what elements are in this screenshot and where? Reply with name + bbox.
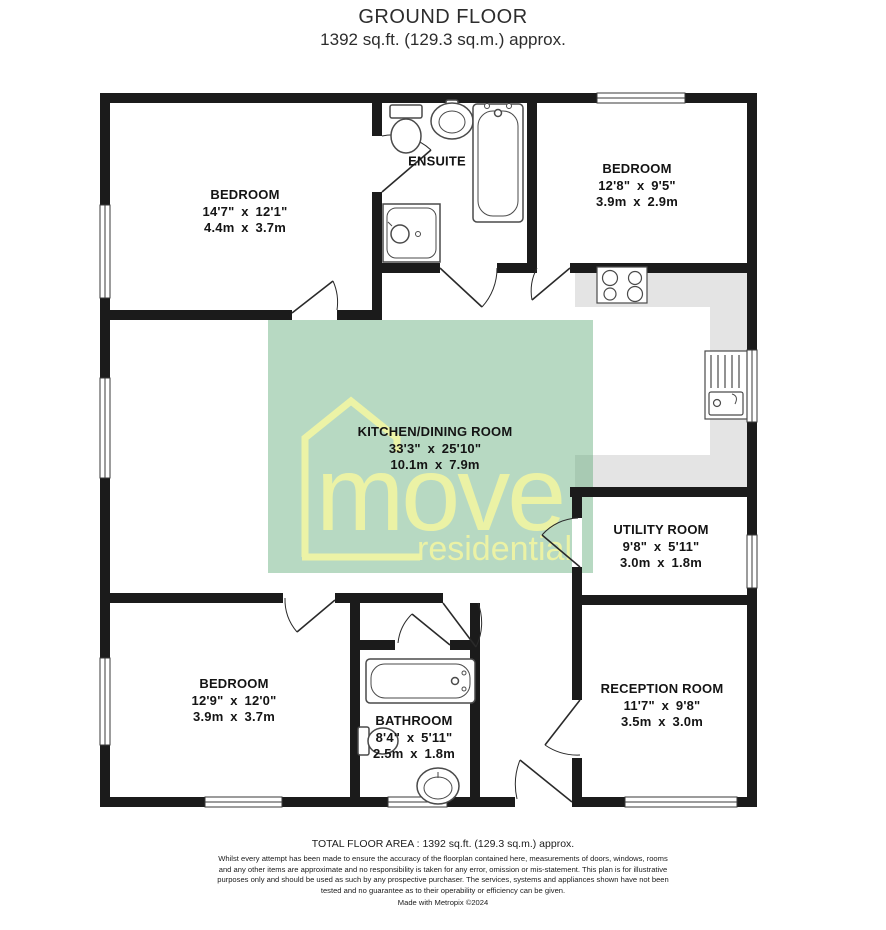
room-name: BEDROOM bbox=[203, 187, 288, 204]
room-dims-imperial: 14'7" x 12'1" bbox=[203, 204, 288, 221]
wall-utility-top bbox=[570, 487, 757, 497]
room-dims-metric: 3.5m x 3.0m bbox=[601, 714, 724, 731]
room-label-reception: RECEPTION ROOM 11'7" x 9'8" 3.5m x 3.0m bbox=[601, 681, 724, 731]
wall-bedroomtl-ensuite bbox=[372, 103, 382, 316]
room-label-bathroom: BATHROOM 8'4" x 5'11" 2.5m x 1.8m bbox=[373, 713, 455, 763]
wall-ensuite-bedroomtr bbox=[527, 93, 537, 273]
room-name: BEDROOM bbox=[596, 161, 678, 178]
ensuite-shower bbox=[383, 204, 440, 262]
ensuite-toilet bbox=[390, 105, 422, 153]
wall-kitchen-bedroombl bbox=[110, 593, 283, 603]
room-dims-metric: 3.9m x 2.9m bbox=[596, 194, 678, 211]
ensuite-kitchen-door-opening bbox=[440, 263, 497, 273]
room-label-kitchen: KITCHEN/DINING ROOM 33'3" x 25'10" 10.1m… bbox=[358, 424, 513, 474]
kitchen-hall-door-opening bbox=[443, 593, 478, 603]
room-dims-metric: 3.0m x 1.8m bbox=[613, 555, 708, 572]
ensuite-door-opening bbox=[372, 136, 382, 192]
wall-bedroomtl-kitchen-b bbox=[337, 310, 382, 320]
room-dims-imperial: 12'9" x 12'0" bbox=[192, 693, 277, 710]
window-reception-bottom bbox=[625, 797, 737, 807]
room-label-utility: UTILITY ROOM 9'8" x 5'11" 3.0m x 1.8m bbox=[613, 522, 708, 572]
kitchen-hob bbox=[597, 267, 647, 303]
bedroomtl-door-opening bbox=[292, 310, 337, 320]
plan-footer: TOTAL FLOOR AREA : 1392 sq.ft. (129.3 sq… bbox=[0, 838, 886, 907]
total-floor-area: TOTAL FLOOR AREA : 1392 sq.ft. (129.3 sq… bbox=[0, 838, 886, 850]
room-dims-imperial: 12'8" x 9'5" bbox=[596, 178, 678, 195]
kitchen-sink bbox=[705, 351, 747, 419]
room-dims-metric: 10.1m x 7.9m bbox=[358, 457, 513, 474]
room-dims-imperial: 33'3" x 25'10" bbox=[358, 441, 513, 458]
wall-bedroombl-bathroom bbox=[350, 603, 360, 807]
window-bedroombl-bottom bbox=[205, 797, 282, 807]
room-name: RECEPTION ROOM bbox=[601, 681, 724, 698]
window-utility-right bbox=[747, 535, 757, 588]
watermark-tagline: residential bbox=[417, 530, 572, 568]
window-bedroombl-left bbox=[100, 658, 110, 745]
room-label-bedroom-bl: BEDROOM 12'9" x 12'0" 3.9m x 3.7m bbox=[192, 676, 277, 726]
bedroomtl-door bbox=[292, 281, 338, 313]
bathroom-basin bbox=[417, 768, 459, 804]
room-name: BATHROOM bbox=[373, 713, 455, 730]
bathroom-bath bbox=[366, 659, 475, 703]
room-dims-imperial: 9'8" x 5'11" bbox=[613, 539, 708, 556]
room-dims-imperial: 8'4" x 5'11" bbox=[373, 730, 455, 747]
room-label-bedroom-tr: BEDROOM 12'8" x 9'5" 3.9m x 2.9m bbox=[596, 161, 678, 211]
bedroombl-door bbox=[285, 598, 335, 632]
bedroombl-door-opening bbox=[283, 593, 335, 603]
room-label-ensuite: ENSUITE bbox=[408, 154, 466, 171]
wall-ensuite-kitchen-b bbox=[497, 263, 537, 273]
wall-bathroom-hall bbox=[470, 603, 480, 807]
front-door bbox=[515, 760, 572, 802]
window-kitchen-right bbox=[747, 350, 757, 422]
utility-door-opening bbox=[572, 518, 582, 567]
wall-utility-reception bbox=[572, 595, 757, 605]
wall-bedroomtl-kitchen-a bbox=[110, 310, 292, 320]
room-name: KITCHEN/DINING ROOM bbox=[358, 424, 513, 441]
metropix-credit: Made with Metropix ©2024 bbox=[0, 898, 886, 907]
window-bedroomtr-top bbox=[597, 93, 685, 103]
floorplan-page: GROUND FLOOR 1392 sq.ft. (129.3 sq.m.) a… bbox=[0, 0, 886, 930]
room-dims-metric: 3.9m x 3.7m bbox=[192, 709, 277, 726]
room-label-bedroom-tl: BEDROOM 14'7" x 12'1" 4.4m x 3.7m bbox=[203, 187, 288, 237]
room-name: ENSUITE bbox=[408, 154, 466, 171]
wall-ensuite-kitchen-a bbox=[372, 263, 440, 273]
room-dims-metric: 4.4m x 3.7m bbox=[203, 220, 288, 237]
outer-wall-right bbox=[747, 93, 757, 807]
disclaimer-text: Whilst every attempt has been made to en… bbox=[217, 854, 669, 897]
room-dims-metric: 2.5m x 1.8m bbox=[373, 746, 455, 763]
bathroom-door-opening bbox=[395, 640, 450, 650]
ensuite-basin bbox=[431, 100, 473, 139]
room-dims-imperial: 11'7" x 9'8" bbox=[601, 698, 724, 715]
ensuite-kitchen-door bbox=[440, 268, 497, 307]
ensuite-bath bbox=[473, 104, 523, 223]
front-door-opening bbox=[515, 797, 572, 807]
window-kitchen-left bbox=[100, 378, 110, 478]
window-bedroomtl-left bbox=[100, 205, 110, 298]
room-name: BEDROOM bbox=[192, 676, 277, 693]
room-name: UTILITY ROOM bbox=[613, 522, 708, 539]
